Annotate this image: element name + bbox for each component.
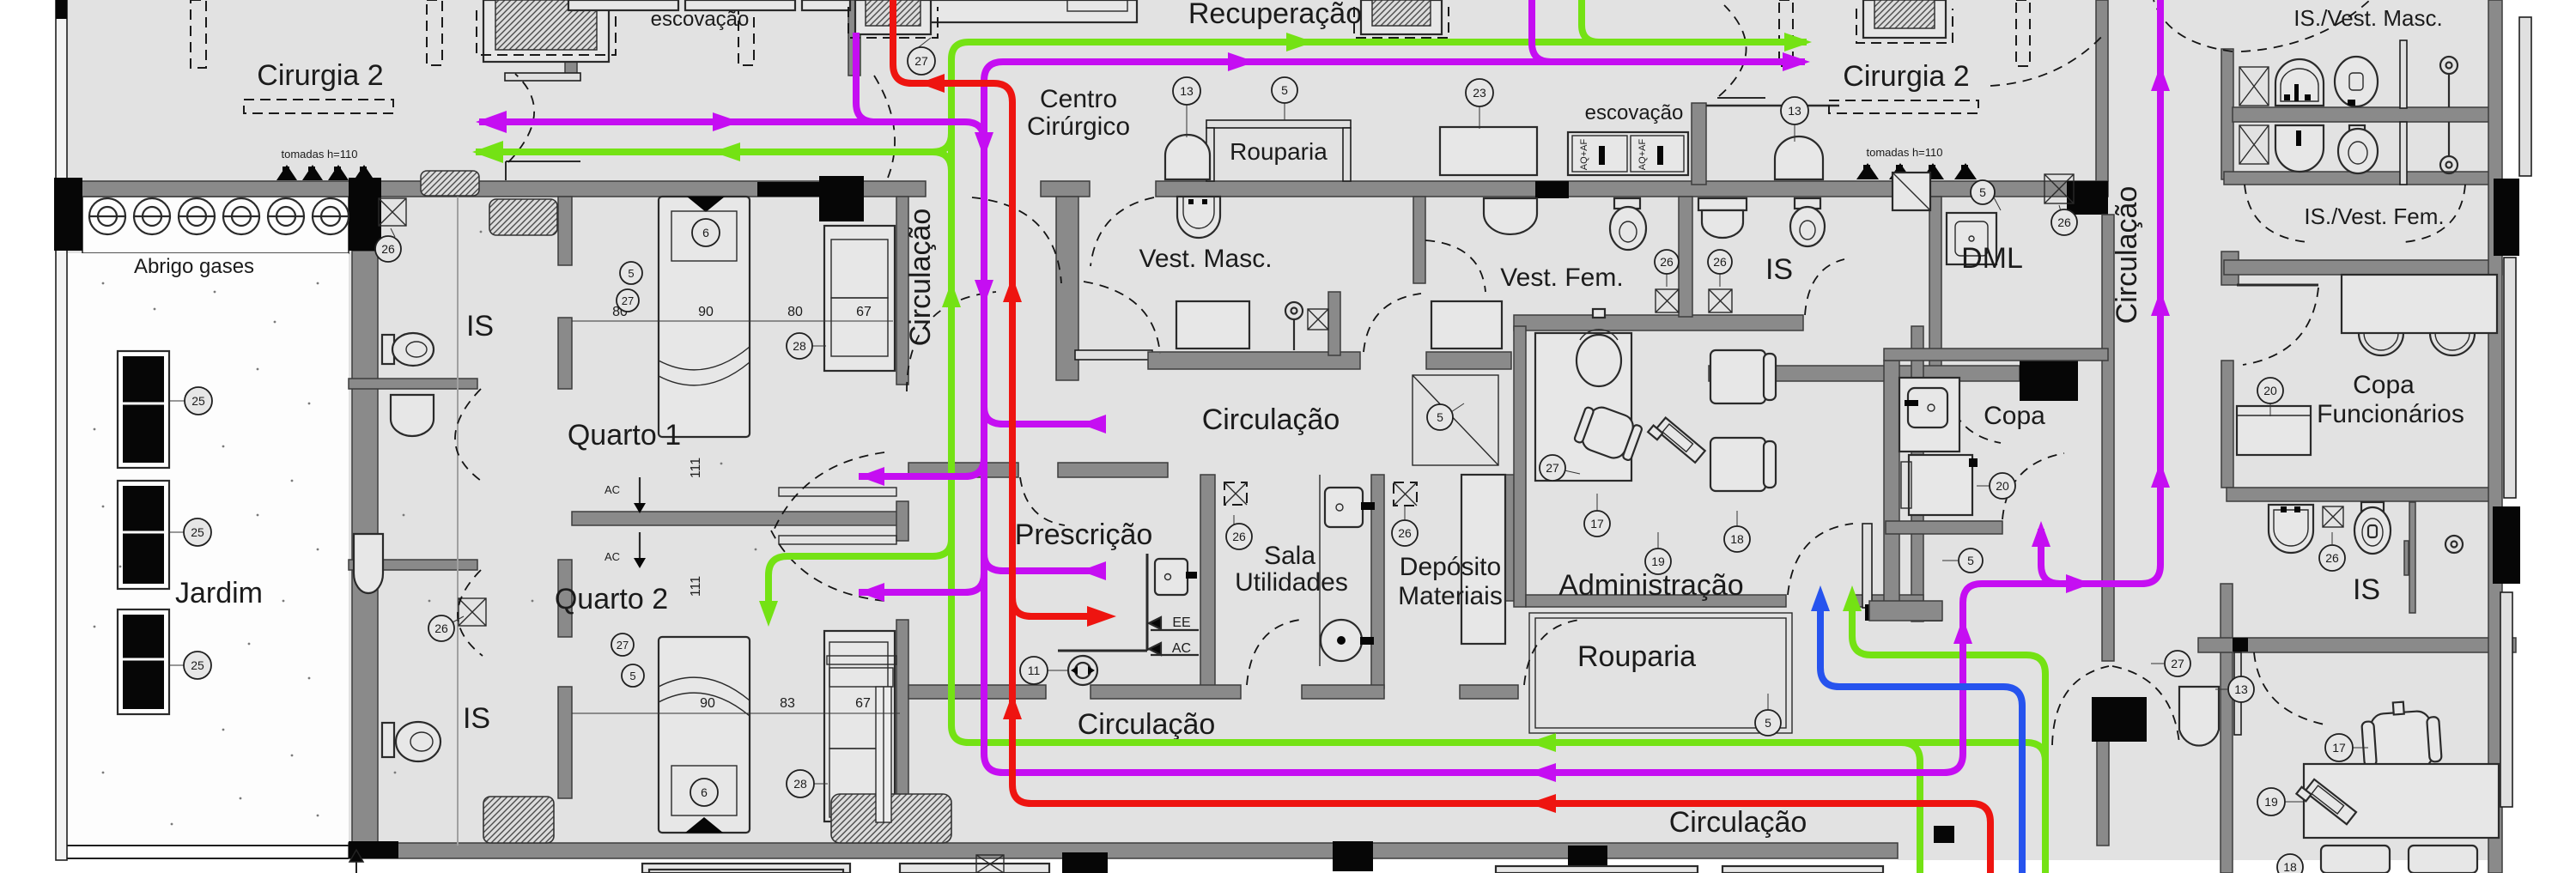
- svg-text:28: 28: [793, 339, 806, 353]
- svg-text:Sala: Sala: [1264, 542, 1315, 570]
- svg-text:5: 5: [1765, 716, 1771, 730]
- svg-text:5: 5: [1979, 185, 1986, 199]
- svg-text:26: 26: [1398, 526, 1412, 540]
- svg-text:5: 5: [1437, 410, 1443, 424]
- svg-text:AC: AC: [605, 483, 620, 496]
- svg-text:Abrigo gases: Abrigo gases: [134, 255, 254, 278]
- svg-text:Vest. Masc.: Vest. Masc.: [1139, 245, 1272, 273]
- svg-text:13: 13: [1180, 84, 1194, 98]
- svg-text:Depósito: Depósito: [1400, 553, 1501, 581]
- svg-text:18: 18: [1730, 532, 1744, 546]
- svg-text:25: 25: [191, 525, 204, 539]
- svg-text:25: 25: [191, 658, 204, 672]
- svg-text:Cirurgia 2: Cirurgia 2: [1843, 60, 1969, 93]
- svg-text:escovação: escovação: [651, 8, 750, 31]
- svg-text:AQ+AF: AQ+AF: [1579, 139, 1589, 171]
- svg-text:Funcionários: Funcionários: [2317, 400, 2464, 428]
- svg-text:5: 5: [629, 670, 635, 682]
- svg-text:19: 19: [2264, 795, 2278, 809]
- svg-text:90: 90: [700, 696, 715, 711]
- svg-text:AQ+AF: AQ+AF: [1637, 139, 1648, 171]
- svg-text:Centro: Centro: [1040, 85, 1117, 113]
- svg-text:5: 5: [628, 267, 634, 280]
- svg-text:5: 5: [1281, 83, 1288, 97]
- svg-text:Circulação: Circulação: [1669, 806, 1807, 839]
- svg-text:Circulação: Circulação: [2111, 186, 2143, 324]
- svg-text:Quarto 1: Quarto 1: [568, 419, 681, 452]
- svg-text:18: 18: [2283, 860, 2297, 873]
- svg-text:escovação: escovação: [1585, 101, 1684, 124]
- svg-text:67: 67: [855, 696, 871, 711]
- svg-text:80: 80: [787, 305, 803, 319]
- svg-text:17: 17: [1590, 517, 1604, 530]
- svg-text:111: 111: [689, 458, 703, 478]
- svg-text:tomadas h=110: tomadas h=110: [1866, 146, 1942, 159]
- svg-text:26: 26: [381, 242, 395, 256]
- svg-text:20: 20: [1996, 479, 2009, 493]
- svg-text:27: 27: [914, 54, 928, 68]
- svg-text:Vest. Fem.: Vest. Fem.: [1500, 264, 1623, 292]
- svg-text:tomadas h=110: tomadas h=110: [281, 148, 357, 161]
- svg-text:19: 19: [1651, 555, 1665, 568]
- svg-text:83: 83: [780, 696, 795, 711]
- svg-text:26: 26: [2057, 215, 2071, 229]
- svg-text:Copa: Copa: [1984, 402, 2045, 430]
- svg-text:26: 26: [1660, 255, 1674, 269]
- svg-text:Jardim: Jardim: [175, 577, 263, 609]
- svg-text:Cirurgia 2: Cirurgia 2: [257, 59, 383, 92]
- svg-text:27: 27: [1546, 461, 1559, 475]
- svg-text:AC: AC: [1172, 641, 1191, 656]
- svg-text:5: 5: [1967, 554, 1974, 567]
- svg-text:IS./Vest. Fem.: IS./Vest. Fem.: [2304, 203, 2444, 229]
- svg-text:26: 26: [434, 621, 448, 635]
- svg-text:IS: IS: [1765, 253, 1793, 286]
- svg-text:Materiais: Materiais: [1398, 582, 1503, 610]
- svg-text:23: 23: [1473, 86, 1486, 100]
- svg-text:25: 25: [191, 394, 205, 408]
- svg-text:11: 11: [1028, 664, 1041, 677]
- svg-text:Copa: Copa: [2353, 371, 2415, 399]
- svg-text:17: 17: [2332, 741, 2346, 755]
- svg-text:27: 27: [622, 294, 634, 307]
- svg-text:Utilidades: Utilidades: [1235, 568, 1348, 597]
- svg-text:IS./Vest. Masc.: IS./Vest. Masc.: [2293, 5, 2442, 31]
- svg-text:6: 6: [701, 785, 708, 799]
- svg-text:13: 13: [2234, 682, 2248, 696]
- svg-text:27: 27: [617, 639, 629, 652]
- svg-text:Prescrição: Prescrição: [1015, 518, 1153, 551]
- svg-text:6: 6: [702, 226, 709, 239]
- svg-text:26: 26: [1232, 530, 1246, 543]
- svg-text:Circulação: Circulação: [904, 209, 937, 347]
- svg-text:IS: IS: [463, 702, 490, 735]
- svg-text:67: 67: [856, 305, 872, 319]
- svg-text:Circulação: Circulação: [1078, 708, 1216, 741]
- svg-text:EE: EE: [1172, 615, 1190, 630]
- svg-text:27: 27: [2171, 657, 2184, 670]
- svg-text:20: 20: [2263, 384, 2277, 397]
- svg-text:Rouparia: Rouparia: [1230, 138, 1327, 165]
- svg-text:IS: IS: [466, 310, 494, 343]
- svg-text:AC: AC: [605, 550, 620, 563]
- svg-text:111: 111: [689, 576, 703, 597]
- svg-text:28: 28: [793, 777, 807, 791]
- svg-text:Recuperação: Recuperação: [1188, 0, 1362, 30]
- svg-text:DML: DML: [1961, 242, 2023, 275]
- svg-text:Circulação: Circulação: [1202, 403, 1340, 436]
- svg-text:26: 26: [2325, 551, 2339, 565]
- svg-text:Quarto 2: Quarto 2: [555, 583, 668, 615]
- svg-text:13: 13: [1788, 104, 1801, 118]
- svg-text:IS: IS: [2353, 573, 2380, 606]
- svg-text:90: 90: [698, 305, 714, 319]
- svg-text:26: 26: [1713, 255, 1727, 269]
- svg-text:Administração: Administração: [1558, 569, 1743, 602]
- svg-text:Rouparia: Rouparia: [1577, 640, 1696, 673]
- svg-text:Cirúrgico: Cirúrgico: [1027, 112, 1130, 141]
